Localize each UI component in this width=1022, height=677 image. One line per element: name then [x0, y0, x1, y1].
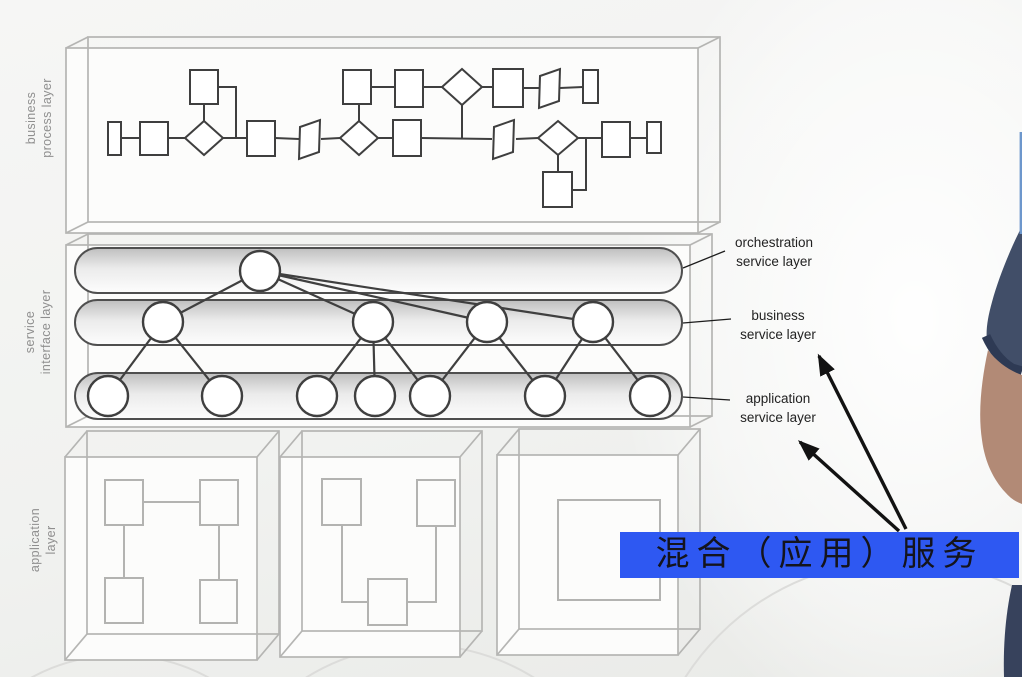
flow-connector — [560, 87, 583, 88]
flow-connector — [321, 138, 340, 139]
application-cube-1-face — [280, 457, 460, 657]
process-parallelogram — [493, 120, 514, 159]
callout-orchestration-service-layer: orchestration service layer — [735, 234, 813, 271]
process-step — [343, 70, 371, 104]
callout-business-service-layer: business service layer — [740, 307, 816, 344]
layer-label-line1: application — [27, 508, 43, 572]
callout-line2: service layer — [740, 326, 816, 345]
process-step — [647, 122, 661, 153]
callout-line1: business — [740, 307, 816, 326]
process-step — [108, 122, 121, 155]
business-service-node — [573, 302, 613, 342]
callout-application-service-layer: application service layer — [740, 390, 816, 427]
application-cube-0-depth-edge — [257, 634, 279, 660]
layer-label-business-process: business process layer — [23, 78, 55, 158]
process-step — [602, 122, 630, 157]
application-cube-1-depth-edge — [280, 431, 302, 457]
video-frame: business process layer service interface… — [0, 0, 1022, 677]
layer-slab-0-depth-edge — [66, 37, 88, 48]
application-service-node — [355, 376, 395, 416]
process-step — [583, 70, 598, 103]
process-step — [190, 70, 218, 104]
application-service-node — [630, 376, 670, 416]
layer-label-application: application layer — [27, 508, 59, 572]
business-service-node — [143, 302, 183, 342]
process-step — [543, 172, 572, 207]
layer-label-line1: service — [22, 290, 38, 375]
application-service-node — [410, 376, 450, 416]
highlight-box: 混合（应用）服务 — [620, 532, 1019, 578]
application-service-node — [297, 376, 337, 416]
application-service-node — [88, 376, 128, 416]
flow-connector — [516, 138, 538, 139]
application-cube-1-depth-edge — [460, 431, 482, 457]
application-cube-2-depth-edge — [497, 429, 519, 455]
application-cube-0-face — [65, 457, 257, 660]
flow-connector — [275, 138, 299, 139]
layer-label-service-interface: service interface layer — [22, 290, 54, 375]
business-service-node — [353, 302, 393, 342]
highlight-text: 混合（应用）服务 — [656, 538, 984, 572]
callout-line1: orchestration — [735, 234, 813, 253]
service-pill — [75, 248, 682, 293]
application-cube-2-depth-edge — [678, 629, 700, 655]
process-step — [393, 120, 421, 156]
application-service-node — [202, 376, 242, 416]
process-step — [493, 69, 523, 107]
layer-label-line2: interface layer — [38, 290, 54, 375]
callout-line2: service layer — [735, 253, 813, 272]
business-service-node — [467, 302, 507, 342]
layer-label-line1: business — [23, 78, 39, 158]
process-parallelogram — [299, 120, 320, 159]
layer-slab-1-depth-edge — [66, 234, 88, 245]
layer-label-line2: layer — [43, 508, 59, 572]
process-parallelogram — [539, 69, 560, 108]
callout-line2: service layer — [740, 409, 816, 428]
process-step — [247, 121, 275, 156]
callout-line1: application — [740, 390, 816, 409]
flow-connector — [421, 138, 492, 139]
orchestration-service-node — [240, 251, 280, 291]
process-step — [140, 122, 168, 155]
application-service-node — [525, 376, 565, 416]
application-cube-0-depth-edge — [257, 431, 279, 457]
application-cube-0-depth-edge — [65, 431, 87, 457]
process-step — [395, 70, 423, 107]
layer-label-line2: process layer — [39, 78, 55, 158]
